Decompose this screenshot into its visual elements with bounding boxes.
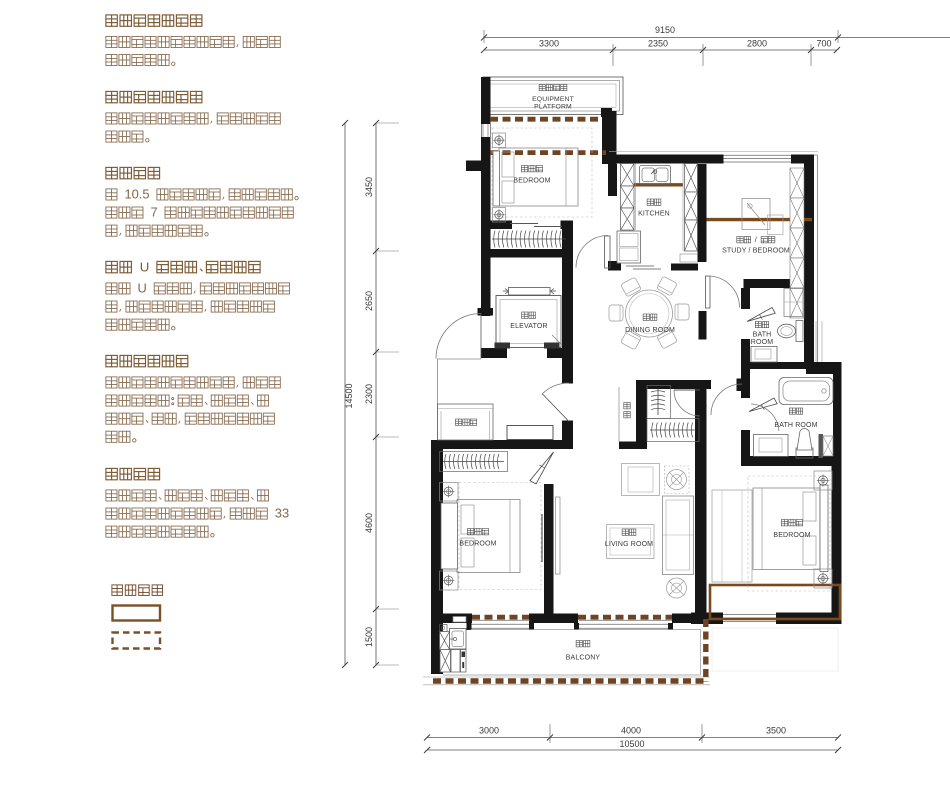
svg-text:4000: 4000 xyxy=(621,726,641,736)
svg-text:2650: 2650 xyxy=(364,291,374,311)
svg-text:BEDROOM: BEDROOM xyxy=(773,532,810,539)
svg-text:14500: 14500 xyxy=(344,383,354,408)
svg-text:700: 700 xyxy=(816,39,831,49)
svg-text:2300: 2300 xyxy=(364,384,374,404)
svg-text:2350: 2350 xyxy=(648,39,668,49)
svg-text:3000: 3000 xyxy=(479,726,499,736)
svg-text:BATH ROOM: BATH ROOM xyxy=(774,422,817,429)
svg-text:KITCHEN: KITCHEN xyxy=(638,211,670,218)
svg-text:4600: 4600 xyxy=(364,513,374,533)
svg-text:3: 3 xyxy=(275,506,282,521)
svg-text:U: U xyxy=(140,259,150,274)
svg-text:3: 3 xyxy=(282,506,289,521)
svg-text:5: 5 xyxy=(142,187,149,202)
svg-text:3450: 3450 xyxy=(364,177,374,197)
svg-text:LIVING ROOM: LIVING ROOM xyxy=(605,541,653,548)
svg-text:10500: 10500 xyxy=(619,739,644,749)
svg-text:9150: 9150 xyxy=(655,25,675,35)
svg-text:PLATFORM: PLATFORM xyxy=(534,104,572,111)
svg-text:3300: 3300 xyxy=(539,39,559,49)
svg-text:BEDROOM: BEDROOM xyxy=(459,541,496,548)
svg-text:3500: 3500 xyxy=(766,726,786,736)
svg-text:BALCONY: BALCONY xyxy=(566,655,601,662)
svg-text:1500: 1500 xyxy=(364,627,374,647)
svg-text:BATH: BATH xyxy=(753,332,772,339)
svg-text:ROOM: ROOM xyxy=(751,339,773,346)
svg-text:BEDROOM: BEDROOM xyxy=(513,178,550,185)
svg-text:2800: 2800 xyxy=(747,39,767,49)
svg-text:STUDY / BEDROOM: STUDY / BEDROOM xyxy=(722,248,790,255)
svg-text:EQUIPMENT: EQUIPMENT xyxy=(532,96,574,103)
svg-text:DINING ROOM: DINING ROOM xyxy=(625,327,675,334)
svg-text:U: U xyxy=(138,281,147,296)
svg-text:0: 0 xyxy=(132,187,139,202)
svg-text:7: 7 xyxy=(151,205,158,220)
svg-text:1: 1 xyxy=(125,187,132,202)
svg-text:ELEVATOR: ELEVATOR xyxy=(510,323,547,330)
